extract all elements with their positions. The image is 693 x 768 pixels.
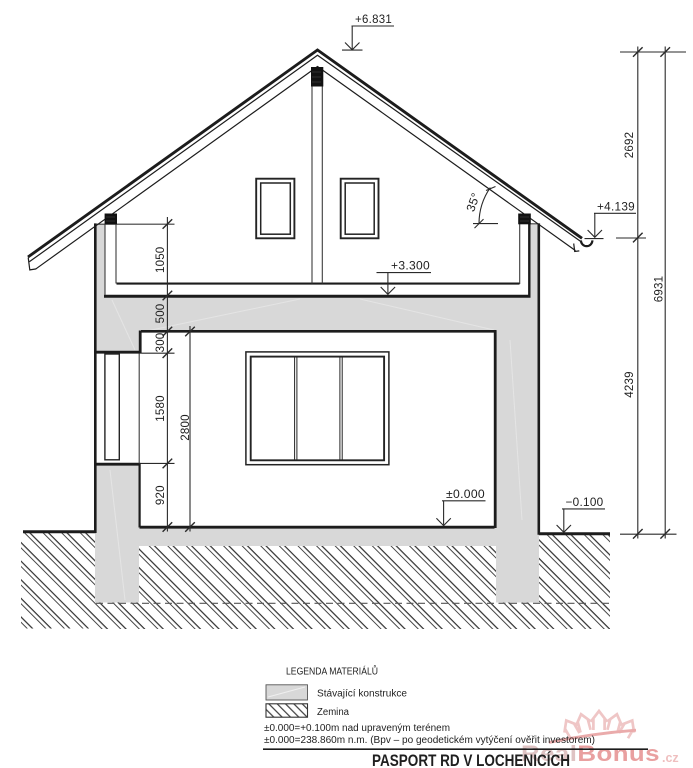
svg-text:+4.139: +4.139: [597, 200, 635, 214]
svg-text:Stávající konstrukce: Stávající konstrukce: [317, 689, 407, 700]
svg-text:500: 500: [155, 304, 167, 324]
svg-text:±0.000: ±0.000: [446, 487, 485, 501]
svg-text:+6.831: +6.831: [355, 12, 392, 26]
svg-text:2692: 2692: [624, 132, 636, 158]
svg-text:300: 300: [155, 333, 167, 353]
svg-text:2800: 2800: [180, 414, 192, 440]
svg-text:6931: 6931: [654, 276, 666, 302]
svg-text:4239: 4239: [624, 371, 636, 397]
svg-text:PASPORT RD V LOCHENICÍCH: PASPORT RD V LOCHENICÍCH: [372, 751, 570, 768]
svg-text:1580: 1580: [155, 395, 167, 421]
svg-text:Zemina: Zemina: [317, 707, 349, 718]
svg-text:.cz: .cz: [662, 751, 679, 765]
svg-text:1050: 1050: [155, 247, 167, 273]
svg-text:±0.000=+0.100m nad upraveným t: ±0.000=+0.100m nad upraveným terénem: [264, 723, 450, 734]
svg-text:−0.100: −0.100: [566, 495, 604, 509]
svg-text:LEGENDA MATERIÁLŮ: LEGENDA MATERIÁLŮ: [286, 665, 378, 678]
svg-text:+3.300: +3.300: [391, 259, 430, 273]
svg-text:920: 920: [155, 485, 167, 505]
svg-text:±0.000=238.860m n.m. (Bpv – po: ±0.000=238.860m n.m. (Bpv – po geodetick…: [264, 735, 595, 746]
